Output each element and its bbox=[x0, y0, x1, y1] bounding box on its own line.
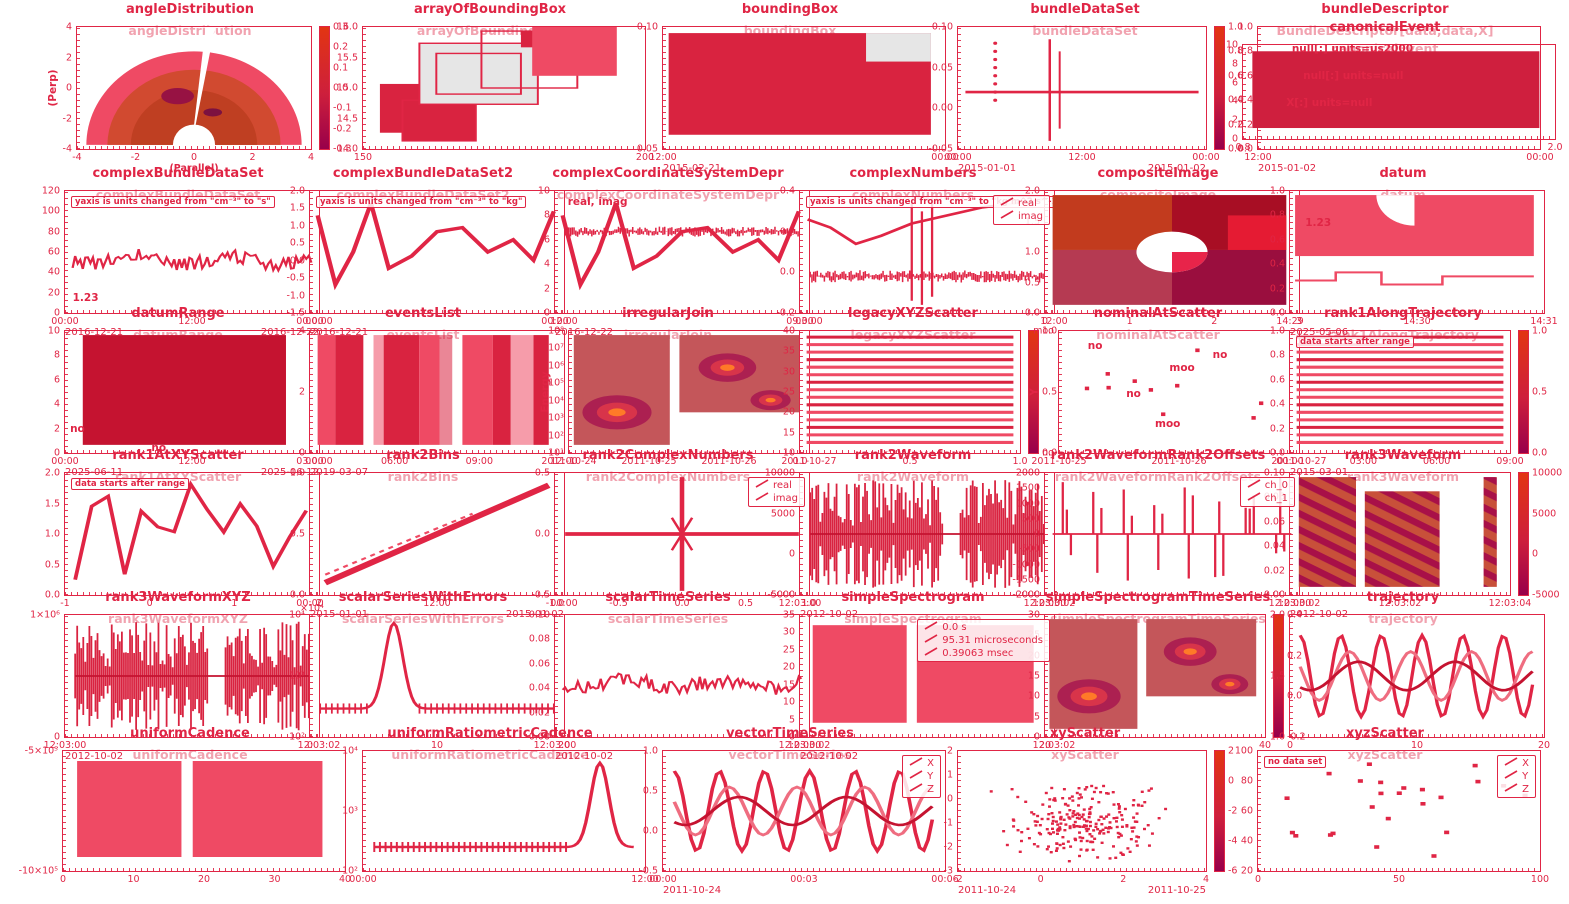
y-axis-ticks bbox=[800, 331, 803, 453]
x-axis-ticks bbox=[77, 146, 311, 149]
legend-line-icon bbox=[1504, 770, 1518, 779]
data-label: moo bbox=[1169, 362, 1194, 374]
legend: ch_0ch_1 bbox=[1240, 477, 1295, 507]
y-axis-ticks bbox=[65, 331, 68, 453]
axes: 3025201510502040 bbox=[1044, 614, 1266, 738]
legend-entry: imag bbox=[755, 492, 798, 505]
y-axis-ticks bbox=[65, 615, 68, 737]
y-tick: 0.05 bbox=[932, 62, 953, 73]
y-tick: 1.0 bbox=[1270, 326, 1285, 337]
y-tick: 2 bbox=[299, 387, 305, 398]
legend-line-icon bbox=[1504, 783, 1518, 792]
legend: 0.0 s95.31 microseconds0.39063 msec bbox=[917, 619, 1050, 662]
figure-title: xyScatter bbox=[915, 726, 1255, 741]
axes: 10⁴10³10²00:0012:00 bbox=[362, 750, 646, 872]
y-tick: 0.4 bbox=[780, 186, 795, 197]
x-tick: 0 bbox=[1255, 874, 1261, 885]
legend-line-icon bbox=[1000, 197, 1014, 206]
legend-entry: Y bbox=[909, 770, 934, 783]
y-tick: 10⁶ bbox=[548, 360, 564, 371]
axes: 0.100.080.060.040.020.0012:03:0012:03:02… bbox=[1289, 472, 1511, 596]
y-axis-label: (Perp) bbox=[47, 69, 59, 106]
figure-title: trajectory bbox=[1247, 590, 1559, 605]
y-tick: 10 bbox=[1226, 40, 1238, 51]
colorbar: 1000050000-5000 bbox=[1518, 472, 1529, 596]
x-tick: 2.0 bbox=[1547, 142, 1562, 153]
y-tick: 15 bbox=[783, 679, 795, 690]
colorbar-tick: 1.0 bbox=[1532, 326, 1547, 337]
y-tick: 35 bbox=[783, 346, 795, 357]
legend-label: X bbox=[1522, 757, 1529, 770]
y-tick: 16.0 bbox=[337, 22, 358, 33]
y-axis-ticks bbox=[65, 191, 68, 313]
legend-line-icon bbox=[755, 479, 769, 488]
y-tick: 8 bbox=[1232, 58, 1238, 69]
y-tick: 15.0 bbox=[337, 83, 358, 94]
axes: 403530252015100.00.51.0 bbox=[799, 330, 1021, 454]
legend-entry: 0.0 s bbox=[924, 621, 1043, 634]
x-tick: 0 bbox=[60, 874, 66, 885]
y-tick: 1.0 bbox=[45, 529, 60, 540]
y-tick: 2 bbox=[1232, 115, 1238, 126]
y-tick: 10⁸ bbox=[548, 326, 564, 337]
axes: 16.015.515.014.514.0150200 bbox=[362, 26, 646, 150]
y-tick: 1000 bbox=[1016, 498, 1040, 509]
y-tick: -1.0 bbox=[286, 290, 305, 301]
y-tick: -2 bbox=[63, 113, 72, 124]
y-tick: 1.0 bbox=[290, 468, 305, 479]
legend-entry: 0.39063 msec bbox=[924, 647, 1043, 660]
y-tick: 10 bbox=[48, 326, 60, 337]
legend-label: 0.39063 msec bbox=[942, 647, 1013, 660]
x-tick: 30 bbox=[268, 874, 280, 885]
legend-line-icon bbox=[909, 757, 923, 766]
y-tick: 10³ bbox=[342, 806, 358, 817]
y-tick: 5 bbox=[789, 714, 795, 725]
y-axis-ticks bbox=[555, 615, 558, 737]
y-tick: 20 bbox=[783, 662, 795, 673]
data-label: no bbox=[1213, 349, 1228, 361]
plot-content bbox=[663, 27, 945, 149]
y-tick: 1.5 bbox=[290, 203, 305, 214]
y-tick: 120 bbox=[42, 186, 60, 197]
x-tick: 00:00 bbox=[944, 152, 971, 163]
figure-title: xyzScatter bbox=[1215, 726, 1555, 741]
y-tick: 40 bbox=[783, 326, 795, 337]
y-tick: 6 bbox=[54, 374, 60, 385]
data-label: 1.23 bbox=[1305, 217, 1331, 229]
x-tick: -2 bbox=[131, 152, 140, 163]
y-axis-label: Y bbox=[1029, 388, 1041, 396]
legend-line-icon bbox=[924, 634, 938, 643]
y-tick: 20 bbox=[783, 407, 795, 418]
y-tick: -5×10⁵ bbox=[25, 746, 58, 757]
y-tick: 15 bbox=[783, 427, 795, 438]
y-tick: 0.02 bbox=[529, 707, 550, 718]
plot-content bbox=[800, 331, 1020, 453]
x-axis-ticks bbox=[1243, 136, 1555, 139]
plot-collage: angleDistributionangleDistribution420-2-… bbox=[0, 0, 1569, 904]
data-label: no bbox=[151, 442, 166, 454]
axes: -5×10⁵-10×10⁵010203040 bbox=[62, 750, 346, 872]
y-tick: 10³ bbox=[548, 413, 564, 424]
y-tick: 0.10 bbox=[529, 610, 550, 621]
y-tick: 60 bbox=[48, 247, 60, 258]
y-tick: 15.5 bbox=[337, 52, 358, 63]
y-tick: 0 bbox=[66, 83, 72, 94]
y-tick: -1500 bbox=[1012, 574, 1040, 585]
y-tick: 0.10 bbox=[932, 22, 953, 33]
figure-uniformRatiometricCadence: uniformRatiometricCadenceuniformRatiomet… bbox=[320, 726, 660, 902]
x-axis-ticks bbox=[663, 146, 945, 149]
y-tick: 0.02 bbox=[1264, 565, 1285, 576]
x-tick: 10 bbox=[127, 874, 139, 885]
figure-uniformCadence: uniformCadenceuniformCadence-5×10⁵-10×10… bbox=[20, 726, 360, 902]
y-axis-ticks bbox=[555, 191, 558, 313]
y-tick: 4 bbox=[544, 259, 550, 270]
x-tick: 00:00 bbox=[349, 874, 376, 885]
y-tick: -1000 bbox=[1012, 559, 1040, 570]
plot-content bbox=[1290, 331, 1510, 453]
y-tick: 0.8 bbox=[1270, 350, 1285, 361]
legend-line-icon bbox=[755, 492, 769, 501]
y-tick: 0.04 bbox=[529, 683, 550, 694]
figure-vectorTimeSeries: vectorTimeSeriesvectorTimeSeries1.00.50.… bbox=[620, 726, 960, 902]
y-axis-ticks bbox=[1290, 331, 1293, 453]
colorbar-tick: 10000 bbox=[1532, 468, 1562, 479]
y-tick: 0 bbox=[789, 549, 795, 560]
y-axis-ticks bbox=[800, 191, 803, 313]
y-tick: 2 bbox=[54, 423, 60, 434]
x-axis-date: 2011-10-25 bbox=[1148, 885, 1206, 896]
y-tick: 2 bbox=[544, 283, 550, 294]
axes: 10080604020050100no data setXYZ bbox=[1257, 750, 1541, 872]
legend: XYZ bbox=[902, 755, 941, 798]
y-tick: 0.5 bbox=[1025, 277, 1040, 288]
plot-content bbox=[363, 27, 645, 149]
legend-entry: real bbox=[755, 479, 798, 492]
axes: 2.01.51.001020 bbox=[1289, 614, 1545, 738]
legend-label: imag bbox=[773, 492, 798, 505]
y-axis-ticks bbox=[310, 473, 313, 595]
y-tick: 80 bbox=[48, 226, 60, 237]
plot-content bbox=[1290, 615, 1544, 737]
legend-label: 0.0 s bbox=[942, 621, 966, 634]
y-tick: 0.2 bbox=[1270, 423, 1285, 434]
x-axis-date: 2011-10-24 bbox=[958, 885, 1016, 896]
colorbar-tick: 0.5 bbox=[1532, 387, 1547, 398]
legend-label: real bbox=[773, 479, 792, 492]
y-tick: 2 bbox=[66, 52, 72, 63]
y-tick: 10⁴ bbox=[342, 746, 358, 757]
legend: realimag bbox=[993, 195, 1050, 225]
y-axis-ticks bbox=[1258, 751, 1261, 871]
y-tick: 20 bbox=[48, 287, 60, 298]
x-axis-ticks bbox=[63, 868, 345, 871]
y-tick: -3 bbox=[944, 866, 953, 877]
legend-line-icon bbox=[1247, 492, 1261, 501]
y-tick: 20 bbox=[1241, 866, 1253, 877]
y-tick: 0.5 bbox=[290, 529, 305, 540]
legend-line-icon bbox=[909, 783, 923, 792]
y-tick: moo bbox=[1033, 326, 1054, 337]
data-label: no bbox=[1126, 388, 1141, 400]
colorbar-tick: 5000 bbox=[1532, 508, 1556, 519]
y-tick: -1 bbox=[944, 818, 953, 829]
y-tick: 10³ bbox=[289, 671, 305, 682]
figure-xyScatter: xyScatterxyScatter210-1-2-3-20242011-10-… bbox=[915, 726, 1255, 902]
x-axis-ticks bbox=[958, 146, 1206, 149]
legend-entry: ch_0 bbox=[1247, 479, 1288, 492]
y-axis-ticks bbox=[1243, 45, 1246, 139]
x-tick: 20 bbox=[198, 874, 210, 885]
legend-label: Y bbox=[927, 770, 933, 783]
y-axis-ticks bbox=[363, 751, 366, 871]
y-tick: 60 bbox=[1241, 806, 1253, 817]
x-tick: 0 bbox=[191, 152, 197, 163]
y-tick: -4 bbox=[63, 144, 72, 155]
axes: 210-1-2-3-20242011-10-242011-10-25 bbox=[957, 750, 1207, 872]
y-tick: 25 bbox=[783, 644, 795, 655]
x-axis-date: 2011-10-24 bbox=[663, 885, 721, 896]
legend-line-icon bbox=[1000, 210, 1014, 219]
y-tick: -0.5 bbox=[286, 273, 305, 284]
y-tick: 0.6 bbox=[1270, 374, 1285, 385]
y-tick: 40 bbox=[48, 267, 60, 278]
axis-offset-note: ×10⁴ bbox=[300, 603, 324, 614]
x-axis-ticks bbox=[363, 146, 645, 149]
legend-line-icon bbox=[1247, 479, 1261, 488]
x-axis-ticks bbox=[958, 868, 1206, 871]
plot-content bbox=[958, 751, 1206, 871]
legend-label: Z bbox=[1522, 783, 1529, 796]
data-label: X[:] units=null bbox=[1286, 97, 1372, 109]
y-axis-ticks bbox=[800, 615, 803, 737]
y-tick: 2.0 bbox=[45, 468, 60, 479]
y-tick: 0.4 bbox=[1270, 259, 1285, 270]
legend-label: ch_1 bbox=[1265, 492, 1288, 505]
x-tick: 00:00 bbox=[649, 874, 676, 885]
y-axis-ticks bbox=[1045, 473, 1048, 595]
y-tick: 0.0 bbox=[290, 255, 305, 266]
y-tick: 0.8 bbox=[1270, 210, 1285, 221]
y-axis-ticks bbox=[958, 27, 961, 149]
figure-title: bundleDataSet bbox=[915, 2, 1255, 17]
y-tick: 1×10⁶ bbox=[30, 610, 60, 621]
y-tick: 4 bbox=[66, 22, 72, 33]
y-tick: -2 bbox=[944, 842, 953, 853]
figure-title: uniformRatiometricCadence bbox=[320, 726, 660, 741]
colorbar-tick: 0 bbox=[1532, 549, 1538, 560]
annotation-box: data starts after range bbox=[1296, 336, 1414, 348]
y-tick: 0.5 bbox=[290, 238, 305, 249]
figure-title: rank1AlongTrajectory bbox=[1247, 306, 1559, 321]
y-tick: 2.0 bbox=[1270, 610, 1285, 621]
x-tick: 0 bbox=[1038, 874, 1044, 885]
y-tick: 4 bbox=[54, 399, 60, 410]
y-tick: 0.6 bbox=[1270, 234, 1285, 245]
x-tick: -4 bbox=[72, 152, 81, 163]
x-tick: 12:00 bbox=[1068, 152, 1095, 163]
y-tick: 5000 bbox=[771, 508, 795, 519]
data-label: real, imag bbox=[568, 196, 628, 208]
legend: XYZ bbox=[1497, 755, 1536, 798]
y-tick: 30 bbox=[783, 366, 795, 377]
y-tick: 10⁷ bbox=[548, 343, 564, 354]
x-tick: 00:03 bbox=[790, 874, 817, 885]
y-tick: 10² bbox=[548, 430, 564, 441]
x-tick: 100 bbox=[1531, 874, 1549, 885]
data-label: no bbox=[1088, 340, 1103, 352]
figure-title: vectorTimeSeries bbox=[620, 726, 960, 741]
y-tick: 10 bbox=[538, 186, 550, 197]
y-axis-ticks bbox=[958, 751, 961, 871]
annotation-box: yaxis is units changed from "cm⁻³" to "k… bbox=[316, 196, 526, 208]
y-tick: 1.0 bbox=[1270, 186, 1285, 197]
y-tick: 2000 bbox=[1016, 468, 1040, 479]
x-tick: 0.8 bbox=[1235, 142, 1250, 153]
x-tick: 12:00 bbox=[649, 152, 676, 163]
legend-line-icon bbox=[924, 647, 938, 656]
y-axis-ticks bbox=[310, 191, 313, 313]
y-tick: 1.0 bbox=[290, 220, 305, 231]
figure-title: canonicalEvent bbox=[1200, 20, 1569, 35]
y-tick: 35 bbox=[783, 610, 795, 621]
y-tick: 500 bbox=[1022, 513, 1040, 524]
y-tick: 30 bbox=[783, 627, 795, 638]
y-tick: 1500 bbox=[1016, 483, 1040, 494]
y-tick: 0.5 bbox=[643, 785, 658, 796]
legend: realimag bbox=[748, 477, 805, 507]
data-label: moo bbox=[1155, 418, 1180, 430]
y-tick: 0.2 bbox=[780, 226, 795, 237]
axes: 420-2-4-4-2024(Perp)(Parallel) bbox=[76, 26, 312, 150]
plot-content bbox=[958, 27, 1206, 149]
legend-entry: X bbox=[909, 757, 934, 770]
annotation-box: no data set bbox=[1264, 756, 1326, 768]
y-tick: 0.0 bbox=[643, 825, 658, 836]
x-tick: 50 bbox=[1393, 874, 1405, 885]
figure-title: arrayOfBoundingBox bbox=[320, 2, 660, 17]
y-axis-ticks bbox=[310, 331, 313, 453]
axes: 0.100.050.00-0.0500:0012:0000:002015-01-… bbox=[957, 26, 1207, 150]
y-axis-ticks bbox=[1059, 331, 1062, 453]
figure-title: boundingBox bbox=[620, 2, 960, 17]
legend-label: X bbox=[927, 757, 934, 770]
figure-title: rank3Waveform bbox=[1247, 448, 1559, 463]
x-axis-ticks bbox=[663, 868, 945, 871]
legend-label: ch_0 bbox=[1265, 479, 1288, 492]
y-tick: 8 bbox=[54, 350, 60, 361]
legend-line-icon bbox=[1504, 757, 1518, 766]
y-tick: 10 bbox=[783, 697, 795, 708]
x-axis-ticks bbox=[1258, 868, 1540, 871]
y-tick: 0.5 bbox=[45, 559, 60, 570]
x-tick: 2 bbox=[1120, 874, 1126, 885]
y-tick: 1.5 bbox=[45, 498, 60, 509]
figure-boundingBox: boundingBoxboundingBox0.100.0512:0000:00… bbox=[620, 2, 960, 180]
plot-content bbox=[1243, 45, 1555, 139]
y-axis-ticks bbox=[1290, 615, 1293, 737]
y-axis-ticks bbox=[77, 27, 80, 149]
y-tick: 0.0 bbox=[780, 267, 795, 278]
colorbar: 1.00.50.0 bbox=[1518, 330, 1529, 454]
legend-line-icon bbox=[924, 621, 938, 630]
axes: 0.100.0512:0000:002015-02-21 bbox=[662, 26, 946, 150]
y-tick: 25 bbox=[783, 387, 795, 398]
y-tick: 4 bbox=[1232, 96, 1238, 107]
y-axis-ticks bbox=[1290, 191, 1293, 313]
axes: 1.00.80.60.40.20.000:0003:0006:0009:0020… bbox=[1289, 330, 1511, 454]
figure-title: bundleDescriptor bbox=[1215, 2, 1555, 17]
y-tick: -10×10⁵ bbox=[19, 866, 58, 877]
figure-angleDistribution: angleDistributionangleDistribution420-2-… bbox=[20, 2, 360, 180]
axes: 10864200.82.0 bbox=[1242, 44, 1556, 140]
y-tick: 0.06 bbox=[1264, 516, 1285, 527]
y-tick: 8 bbox=[544, 210, 550, 221]
y-axis-ticks bbox=[555, 473, 558, 595]
y-tick: 100 bbox=[42, 206, 60, 217]
x-axis-ticks bbox=[363, 868, 645, 871]
y-tick: 0 bbox=[1034, 529, 1040, 540]
y-tick: 6 bbox=[544, 234, 550, 245]
y-tick: 0.06 bbox=[529, 658, 550, 669]
y-axis-ticks bbox=[63, 751, 66, 871]
plot-content bbox=[1045, 615, 1265, 737]
legend-label: Y bbox=[1522, 770, 1528, 783]
y-axis-ticks bbox=[663, 751, 666, 871]
legend-entry: X bbox=[1504, 757, 1529, 770]
data-label: null[:] units=null bbox=[1303, 70, 1403, 82]
y-tick: 0 bbox=[947, 794, 953, 805]
x-tick: 4 bbox=[308, 152, 314, 163]
y-tick: 15 bbox=[1028, 671, 1040, 682]
figure-arrayOfBoundingBox: arrayOfBoundingBoxarrayOfBoundingBox16.0… bbox=[320, 2, 660, 180]
data-label: 1.23 bbox=[73, 292, 99, 304]
legend-label: Z bbox=[927, 783, 934, 796]
legend-entry: imag bbox=[1000, 210, 1043, 223]
y-axis-ticks bbox=[65, 473, 68, 595]
y-tick: 0.00 bbox=[932, 103, 953, 114]
plot-content bbox=[63, 751, 345, 871]
plot-content bbox=[1290, 473, 1510, 595]
y-tick: 0.0 bbox=[535, 529, 550, 540]
y-tick: 100 bbox=[1235, 746, 1253, 757]
x-tick: 150 bbox=[354, 152, 372, 163]
y-axis-ticks bbox=[663, 27, 666, 149]
y-axis-label: Energy bbox=[539, 371, 551, 412]
legend-entry: ch_1 bbox=[1247, 492, 1288, 505]
legend-entry: Y bbox=[1504, 770, 1529, 783]
y-tick: 80 bbox=[1241, 776, 1253, 787]
data-label: no bbox=[70, 423, 85, 435]
plot-content bbox=[1290, 191, 1544, 313]
plot-content bbox=[77, 27, 311, 149]
y-tick: 1.5 bbox=[1270, 671, 1285, 682]
axes: 1.00.50.0-0.500:0000:0300:062011-10-24XY… bbox=[662, 750, 946, 872]
y-tick: 0.10 bbox=[637, 22, 658, 33]
figure-title: datum bbox=[1247, 166, 1559, 181]
y-tick: 0.4 bbox=[1270, 399, 1285, 410]
y-axis-ticks bbox=[569, 331, 572, 453]
legend-label: 95.31 microseconds bbox=[942, 634, 1043, 647]
annotation-box: data starts after range bbox=[71, 478, 189, 490]
y-tick: 0.08 bbox=[529, 634, 550, 645]
figure-title: uniformCadence bbox=[20, 726, 360, 741]
legend-entry: real bbox=[1000, 197, 1043, 210]
legend-entry: Z bbox=[909, 783, 934, 796]
y-tick: -500 bbox=[1018, 544, 1040, 555]
